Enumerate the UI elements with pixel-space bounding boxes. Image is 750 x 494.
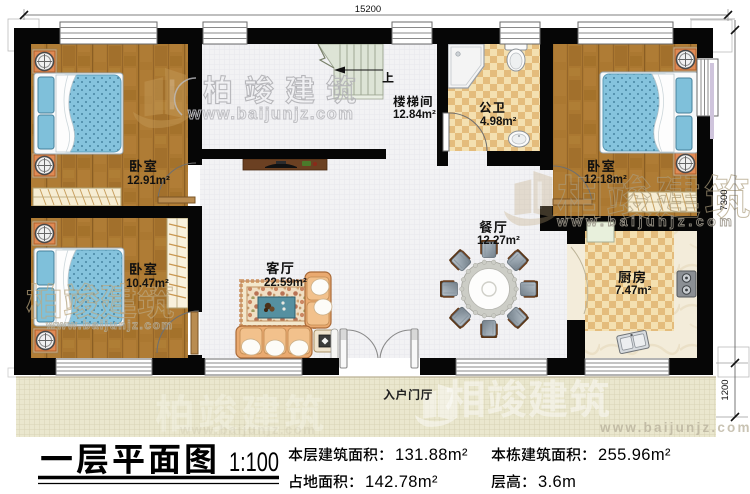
svg-text:12.27m²: 12.27m² bbox=[477, 235, 520, 247]
svg-text:255.96m²: 255.96m² bbox=[598, 446, 671, 464]
svg-text:7300: 7300 bbox=[719, 189, 730, 210]
svg-text:1200: 1200 bbox=[720, 379, 731, 400]
svg-text:10.47m²: 10.47m² bbox=[126, 278, 169, 290]
svg-text:3.6m: 3.6m bbox=[538, 473, 576, 491]
svg-text:12.18m²: 12.18m² bbox=[584, 174, 627, 186]
svg-text:www.baijunjz.com: www.baijunjz.com bbox=[45, 318, 174, 332]
svg-text:131.88m²: 131.88m² bbox=[395, 446, 468, 464]
svg-text:www.baijunjz.com: www.baijunjz.com bbox=[556, 213, 735, 229]
svg-text:15200: 15200 bbox=[355, 4, 381, 15]
svg-text:22.59m²: 22.59m² bbox=[264, 277, 307, 289]
svg-text:1:100: 1:100 bbox=[229, 447, 279, 478]
svg-text:12.91m²: 12.91m² bbox=[127, 175, 170, 187]
svg-text:4.98m²: 4.98m² bbox=[480, 116, 517, 128]
svg-text:www.baijunjz.com: www.baijunjz.com bbox=[179, 422, 316, 437]
svg-text:142.78m²: 142.78m² bbox=[365, 473, 438, 491]
svg-text:www.baijunjz.com: www.baijunjz.com bbox=[187, 105, 354, 123]
svg-text:www.baijunjz.com: www.baijunjz.com bbox=[599, 420, 750, 435]
svg-text:7.47m²: 7.47m² bbox=[615, 285, 652, 297]
svg-text:12.84m²: 12.84m² bbox=[393, 109, 436, 121]
